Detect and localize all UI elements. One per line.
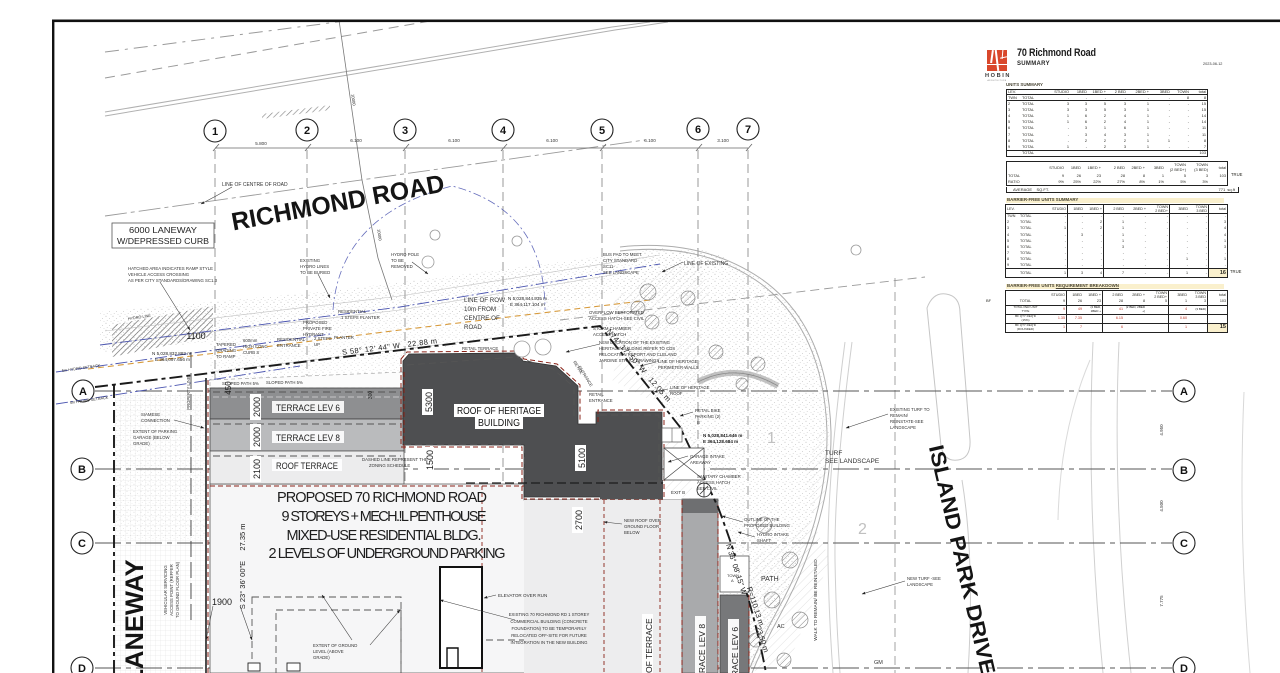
svg-text:BELOW: BELOW (624, 530, 640, 535)
svg-text:TURF: TURF (825, 450, 842, 457)
svg-text:TAPERED: TAPERED (216, 342, 236, 347)
svg-text:ISLAND PARK DRIVE: ISLAND PARK DRIVE (924, 443, 999, 673)
svg-text:4.500: 4.500 (1159, 500, 1164, 512)
svg-text:FOUNDATION) TO BE TEMPORARILY: FOUNDATION) TO BE TEMPORARILY (511, 626, 586, 631)
svg-text:RESIDENTIAL: RESIDENTIAL (338, 309, 367, 314)
svg-text:6000 LANEWAY: 6000 LANEWAY (129, 226, 198, 235)
svg-text:SANITARY CHAMBER: SANITARY CHAMBER (697, 474, 741, 479)
svg-text:REMAIN/: REMAIN/ (890, 413, 909, 418)
svg-text:27.35 m: 27.35 m (238, 523, 247, 550)
svg-text:GRADING: GRADING (216, 348, 237, 353)
svg-text:HATCHED AREA INDICATES RAMP ST: HATCHED AREA INDICATES RAMP STYLE (128, 266, 213, 271)
svg-text:RELOCATION REPORT AND CLELAND: RELOCATION REPORT AND CLELAND (599, 352, 677, 357)
svg-text:S 23° 36' 00"E: S 23° 36' 00"E (238, 561, 247, 609)
svg-text:PROPOSED: PROPOSED (303, 320, 327, 325)
svg-text:LEVEL (ABOVE: LEVEL (ABOVE (313, 649, 344, 654)
svg-text:CONNECTION: CONNECTION (141, 418, 170, 423)
svg-text:1900: 1900 (212, 597, 232, 607)
svg-text:1: 1 (212, 126, 218, 138)
svg-text:ROOF TERRACE: ROOF TERRACE (276, 461, 338, 472)
svg-text:LANEWAY: LANEWAY (121, 559, 149, 673)
svg-text:BUILDING: BUILDING (478, 417, 520, 429)
svg-text:ROOF TERRACE: ROOF TERRACE (644, 618, 654, 673)
svg-text:TERRACE LEV 6: TERRACE LEV 6 (276, 403, 340, 414)
svg-text:AS PER CITY STANDARDS/DRAWING: AS PER CITY STANDARDS/DRAWING SC1.3 (128, 278, 218, 283)
svg-text:TO GROUND FLOOR PLAN): TO GROUND FLOOR PLAN) (175, 561, 180, 618)
svg-text:RELOCATED OFF-SITE FOR FUTURE: RELOCATED OFF-SITE FOR FUTURE (511, 633, 587, 638)
svg-text:SLOPED PATH 5%: SLOPED PATH 5% (266, 380, 303, 385)
svg-text:AREAWAY: AREAWAY (690, 460, 711, 465)
svg-text:RETAIL BIKE: RETAIL BIKE (695, 408, 721, 413)
svg-text:HERITAGE BUILDING REFER TO CDS: HERITAGE BUILDING REFER TO CDS (599, 346, 675, 351)
svg-text:PROPOSED 70 RICHMOND ROAD: PROPOSED 70 RICHMOND ROAD (277, 490, 487, 506)
svg-text:ENTRANCE: ENTRANCE (277, 343, 301, 348)
svg-text:10000: 10000 (376, 229, 383, 242)
svg-text:6.100: 6.100 (350, 138, 362, 143)
svg-text:HYDRO LINES: HYDRO LINES (300, 264, 329, 269)
svg-text:2: 2 (858, 521, 867, 538)
svg-text:1 STEPS PLANTER: 1 STEPS PLANTER (341, 315, 380, 320)
svg-text:MIXED-USE RESIDENTIAL BLDG.: MIXED-USE RESIDENTIAL BLDG. (287, 528, 482, 544)
svg-text:HYDRO INTAKE: HYDRO INTAKE (757, 532, 789, 537)
svg-text:VEHICULAR SERVICING: VEHICULAR SERVICING (163, 565, 168, 615)
svg-text:ELEVATOR OVER RUN: ELEVATOR OVER RUN (498, 593, 547, 598)
svg-text:2: 2 (304, 125, 310, 137)
svg-text:7: 7 (745, 124, 751, 136)
svg-text:E 364,128.684 m: E 364,128.684 m (703, 439, 738, 444)
svg-text:GRADE): GRADE) (133, 441, 150, 446)
svg-text:D: D (1180, 663, 1188, 673)
svg-text:PRIVATE FIRE: PRIVATE FIRE (303, 326, 332, 331)
svg-text:RESIDENTIAL: RESIDENTIAL (277, 337, 306, 342)
svg-text:N 5,028,844.935 m: N 5,028,844.935 m (508, 296, 547, 301)
svg-text:NEW LOCATION OF THE EXISTING: NEW LOCATION OF THE EXISTING (599, 340, 671, 345)
svg-text:300: 300 (368, 391, 374, 400)
svg-text:3: 3 (402, 125, 408, 137)
svg-text:6.100: 6.100 (448, 138, 460, 143)
svg-text:VEHICLE ACCESS CROSSING: VEHICLE ACCESS CROSSING (128, 272, 190, 277)
svg-text:4.950: 4.950 (1159, 424, 1164, 436)
svg-text:GARAGE INTAKE: GARAGE INTAKE (690, 454, 725, 459)
svg-text:PARKING (2): PARKING (2) (695, 414, 721, 419)
svg-text:CITY STANDARD: CITY STANDARD (603, 258, 637, 263)
svg-text:NEW ROOF OVER: NEW ROOF OVER (624, 518, 661, 523)
svg-text:UP: UP (314, 342, 320, 347)
svg-text:GROUND FLOOR: GROUND FLOOR (624, 524, 659, 529)
svg-text:B: B (697, 420, 700, 425)
svg-text:SHAFT: SHAFT (757, 538, 771, 543)
svg-text:5.800: 5.800 (255, 141, 267, 146)
svg-text:SEE LANDSCAPE: SEE LANDSCAPE (825, 458, 880, 465)
svg-text:HYDRO POLE: HYDRO POLE (391, 252, 419, 257)
svg-text:EXISTING 70 RICHMOND RD 1 STOR: EXISTING 70 RICHMOND RD 1 STOREY (509, 612, 590, 617)
svg-text:GM: GM (874, 660, 883, 666)
svg-text:B: B (78, 464, 86, 476)
svg-text:CURB S: CURB S (243, 350, 259, 355)
svg-text:HYDRANT: HYDRANT (303, 332, 324, 337)
svg-text:ACCESS POINT (REFFER: ACCESS POINT (REFFER (169, 564, 174, 616)
svg-text:A: A (731, 578, 734, 583)
svg-text:EXISTING TURF TO: EXISTING TURF TO (890, 407, 930, 412)
svg-text:5300: 5300 (424, 392, 434, 412)
svg-text:600mm: 600mm (243, 338, 258, 343)
svg-text:REINSTATE-SEE: REINSTATE-SEE (890, 419, 924, 424)
svg-text:PATH: PATH (761, 576, 779, 583)
svg-text:ROOF OF HERITAGE: ROOF OF HERITAGE (457, 405, 541, 417)
svg-text:EXIT B: EXIT B (671, 490, 685, 495)
svg-text:SEE CIVIL: SEE CIVIL (697, 486, 718, 491)
svg-text:N 5,028,841.646 m: N 5,028,841.646 m (703, 433, 742, 438)
svg-text:INTEGRATION IN THE NEW BUILDIN: INTEGRATION IN THE NEW BUILDING (511, 640, 589, 645)
svg-text:B: B (1180, 465, 1188, 477)
svg-text:SEE LANDSCAPE: SEE LANDSCAPE (603, 270, 639, 275)
svg-text:4: 4 (500, 125, 507, 137)
svg-text:10m FROM: 10m FROM (464, 306, 496, 313)
svg-text:OVERFLOW PERFORATED: OVERFLOW PERFORATED (589, 310, 644, 315)
svg-text:6.100: 6.100 (644, 138, 656, 143)
svg-text:5m HYDRO SETBACK: 5m HYDRO SETBACK (62, 364, 101, 373)
svg-text:GARAGE (BELOW: GARAGE (BELOW (133, 435, 170, 440)
svg-text:TERRACE LEV 8: TERRACE LEV 8 (697, 624, 707, 673)
svg-text:SIAMESE: SIAMESE (141, 412, 160, 417)
svg-text:2700: 2700 (574, 510, 584, 530)
svg-text:OUTLINE OF THE: OUTLINE OF THE (744, 517, 780, 522)
svg-text:6.100: 6.100 (546, 138, 558, 143)
svg-text:2000: 2000 (252, 397, 262, 417)
svg-text:LANDSCAPE: LANDSCAPE (907, 582, 933, 587)
svg-text:ENTRANCE: ENTRANCE (589, 398, 613, 403)
svg-text:TO RAMP: TO RAMP (216, 354, 236, 359)
svg-text:LANDSCAPE: LANDSCAPE (890, 425, 916, 430)
svg-text:A: A (1180, 386, 1188, 398)
svg-text:9 STOREYS + MECH.!L PENTHOUSE: 9 STOREYS + MECH.!L PENTHOUSE (282, 509, 487, 525)
svg-text:EXTENT OF GROUND: EXTENT OF GROUND (313, 643, 357, 648)
svg-text:GRADE): GRADE) (313, 655, 330, 660)
svg-text:EXISTING: EXISTING (300, 258, 321, 263)
svg-text:LINE OF EXISTING: LINE OF EXISTING (684, 261, 728, 267)
svg-text:2 LEVELS OF UNDERGROUND PARKIN: 2 LEVELS OF UNDERGROUND PARKING (269, 546, 506, 562)
svg-text:1100: 1100 (186, 331, 205, 341)
svg-text:ACCESS HATCH: ACCESS HATCH (593, 332, 626, 337)
svg-text:DASHED LINE REPRESENT THE: DASHED LINE REPRESENT THE (362, 457, 428, 462)
svg-text:E 364,097.656 m: E 364,097.656 m (155, 357, 190, 362)
svg-text:ROOF: ROOF (670, 391, 683, 396)
svg-text:TO BE BURIED: TO BE BURIED (300, 270, 330, 275)
svg-text:W/DEPRESSED CURB: W/DEPRESSED CURB (117, 237, 209, 246)
svg-text:5100: 5100 (577, 448, 587, 468)
svg-text:7.775: 7.775 (1159, 595, 1164, 607)
svg-text:PLANTER: PLANTER (334, 335, 354, 340)
svg-text:TERRACE LEV 8: TERRACE LEV 8 (276, 433, 340, 444)
svg-text:N 5,028,832.882 m: N 5,028,832.882 m (152, 351, 191, 356)
svg-text:TERRACE LEV 6: TERRACE LEV 6 (730, 627, 740, 673)
svg-text:BUS PAD TO MEET: BUS PAD TO MEET (603, 252, 642, 257)
svg-text:TO BE: TO BE (391, 258, 404, 263)
svg-text:6: 6 (695, 124, 701, 136)
svg-text:2100: 2100 (252, 459, 262, 479)
svg-text:CENTRE OF: CENTRE OF (464, 315, 500, 322)
svg-text:SLOPED PATH 5%: SLOPED PATH 5% (222, 381, 259, 386)
svg-text:WALK TO REMAIN/ BE REINSTALED: WALK TO REMAIN/ BE REINSTALED (813, 559, 819, 641)
svg-text:LINE OF HERITAGE: LINE OF HERITAGE (658, 359, 698, 364)
svg-text:ACCESS HATCH: ACCESS HATCH (697, 480, 730, 485)
svg-text:SC11-: SC11- (603, 264, 615, 269)
svg-text:1: 1 (767, 430, 776, 447)
svg-text:3.100: 3.100 (717, 138, 729, 143)
svg-text:PERIMETER WALLS: PERIMETER WALLS (658, 365, 699, 370)
svg-text:REMOVED: REMOVED (391, 264, 413, 269)
svg-text:A: A (79, 386, 87, 398)
svg-text:RETAIL: RETAIL (589, 392, 604, 397)
svg-text:RICHMOND ROAD: RICHMOND ROAD (229, 170, 446, 237)
svg-text:RETAIL TERRACE: RETAIL TERRACE (462, 346, 498, 351)
svg-text:HIGH CONC: HIGH CONC (243, 344, 268, 349)
svg-text:AC: AC (777, 624, 785, 630)
svg-text:LINE OF HERITAGE: LINE OF HERITAGE (670, 385, 710, 390)
svg-text:5: 5 (599, 125, 605, 137)
svg-text:PROPOSED BUILDING: PROPOSED BUILDING (744, 523, 791, 528)
svg-text:C: C (78, 538, 86, 550)
svg-text:C: C (1180, 538, 1188, 550)
svg-text:STORM CHAMBER: STORM CHAMBER (593, 326, 631, 331)
svg-text:PROPERTY LINE: PROPERTY LINE (186, 376, 191, 410)
svg-text:JARDINE STRUC. DRAWINGS: JARDINE STRUC. DRAWINGS (599, 358, 659, 363)
svg-text:ROAD: ROAD (464, 324, 482, 331)
svg-text:E 364,117.104 m: E 364,117.104 m (510, 302, 545, 307)
svg-text:NEW TURF -SEE: NEW TURF -SEE (907, 576, 941, 581)
svg-text:LINE OF ROW: LINE OF ROW (464, 297, 505, 304)
svg-text:COMMERCIAL BUILDING (CONCRETE: COMMERCIAL BUILDING (CONCRETE (510, 619, 587, 624)
svg-text:ACCESS HATCH-SEE CIVIL: ACCESS HATCH-SEE CIVIL (589, 316, 645, 321)
svg-text:ZONING SCHEDULE: ZONING SCHEDULE (369, 463, 410, 468)
svg-text:EXTENT OF PARKING: EXTENT OF PARKING (133, 429, 178, 434)
svg-text:2000: 2000 (252, 427, 262, 447)
svg-text:D: D (78, 663, 86, 673)
